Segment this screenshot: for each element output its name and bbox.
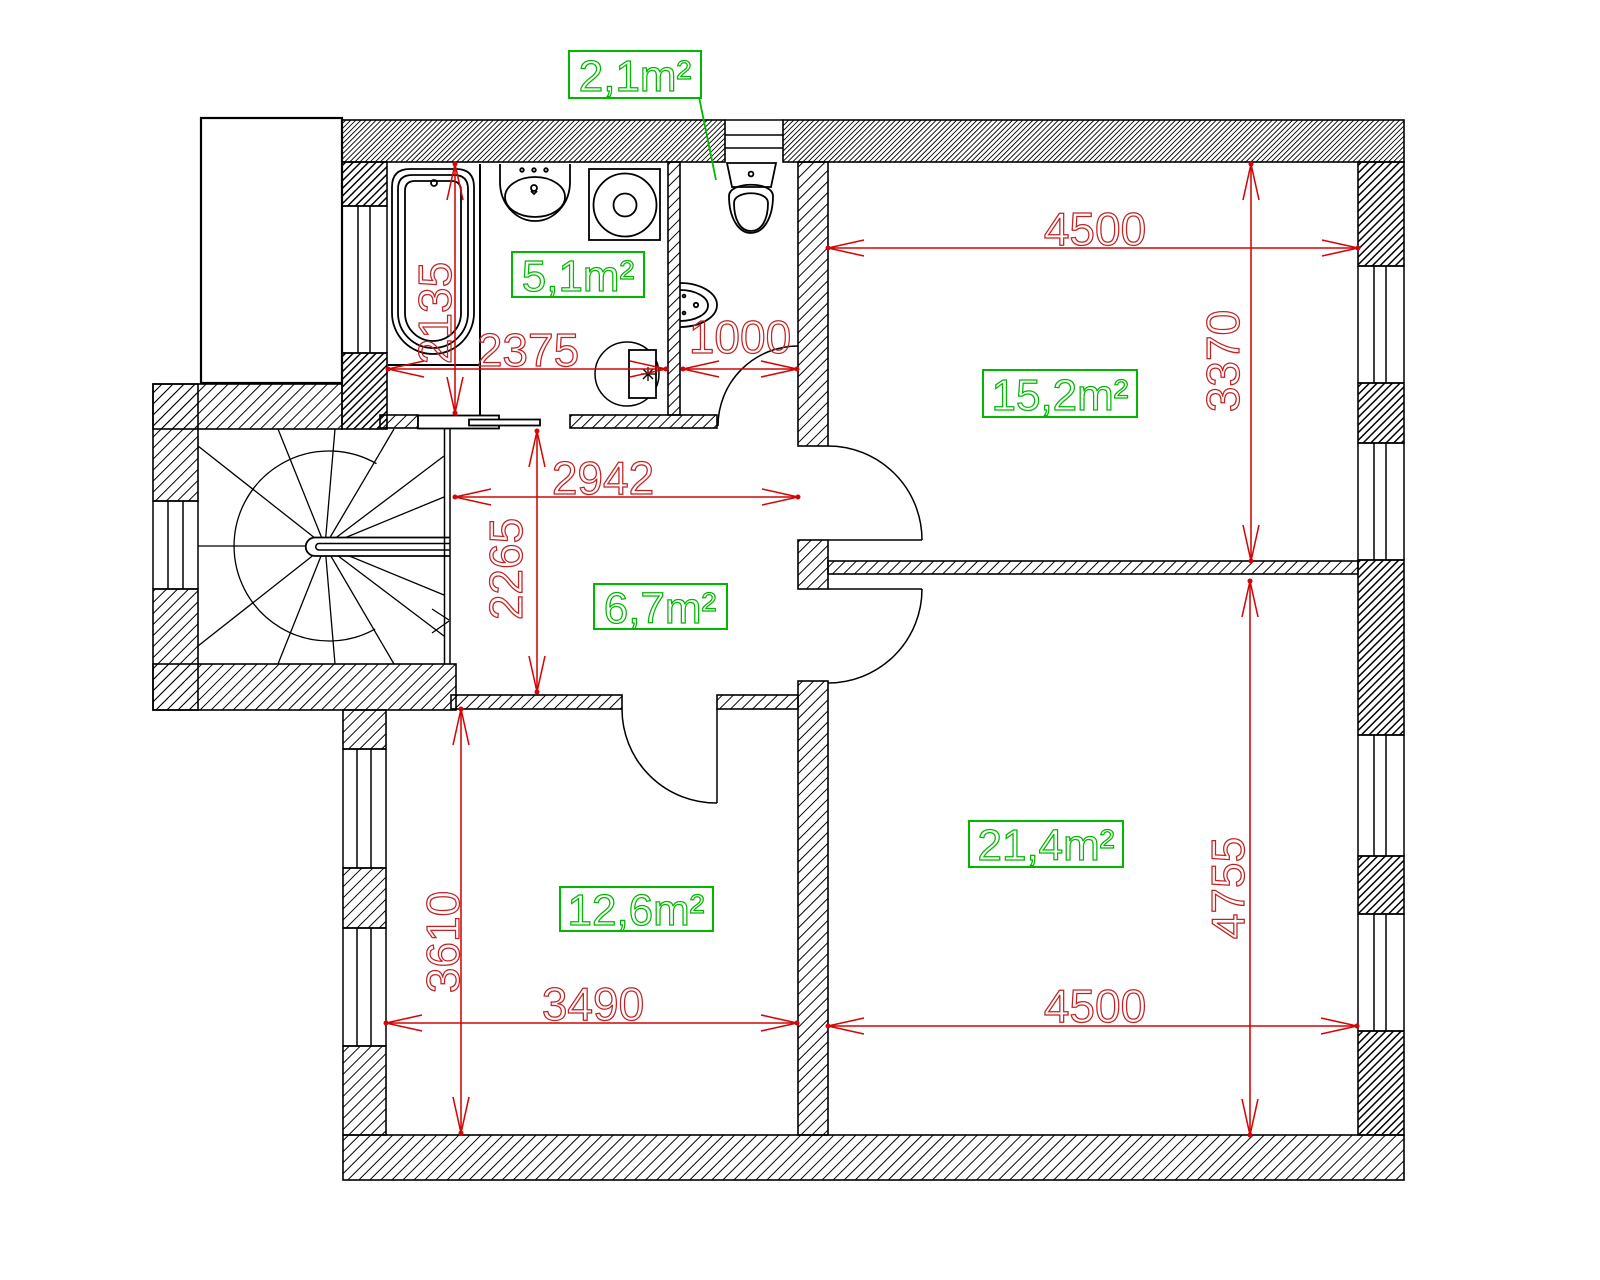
svg-text:21,4m²: 21,4m²: [978, 821, 1115, 870]
svg-text:5,1m²: 5,1m²: [522, 252, 634, 301]
svg-text:3490: 3490: [542, 978, 644, 1030]
svg-text:4500: 4500: [1044, 203, 1146, 255]
svg-text:2135: 2135: [409, 262, 461, 364]
svg-text:2265: 2265: [480, 518, 532, 620]
svg-text:1000: 1000: [689, 311, 791, 363]
svg-text:6,7m²: 6,7m²: [604, 584, 716, 633]
svg-text:4500: 4500: [1044, 980, 1146, 1032]
svg-text:3370: 3370: [1197, 310, 1249, 412]
svg-text:2942: 2942: [552, 452, 654, 504]
svg-text:12,6m²: 12,6m²: [568, 886, 705, 935]
svg-text:3610: 3610: [417, 891, 469, 993]
svg-text:2375: 2375: [477, 324, 579, 376]
svg-text:4755: 4755: [1202, 837, 1254, 939]
svg-text:15,2m²: 15,2m²: [992, 371, 1129, 420]
svg-text:2,1m²: 2,1m²: [579, 52, 691, 101]
